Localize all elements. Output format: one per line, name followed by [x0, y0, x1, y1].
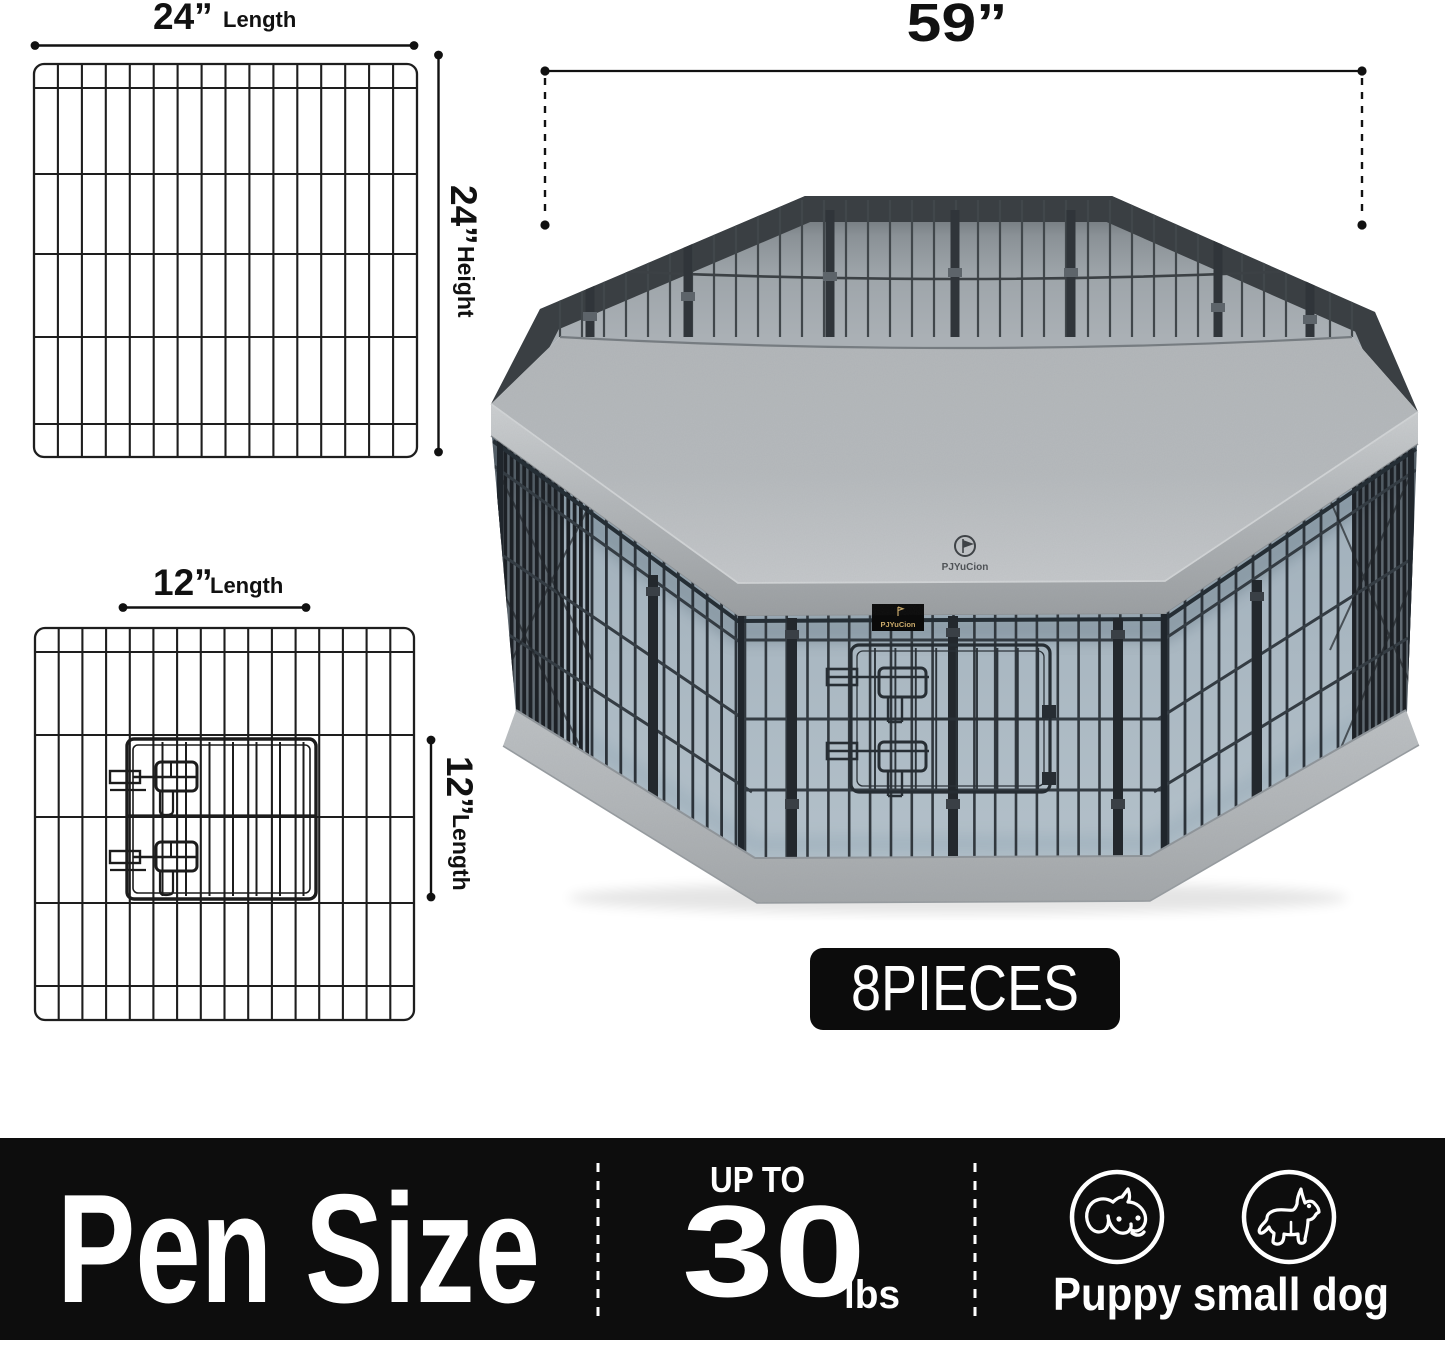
- svg-text:lbs: lbs: [844, 1273, 900, 1317]
- svg-text:Height: Height: [453, 246, 479, 318]
- svg-text:24”: 24”: [443, 185, 484, 245]
- svg-text:12”: 12”: [153, 562, 213, 603]
- svg-text:Length: Length: [210, 573, 283, 598]
- svg-text:Puppy small dog: Puppy small dog: [1053, 1268, 1389, 1320]
- svg-text:PJYuCion: PJYuCion: [880, 620, 915, 629]
- svg-text:Length: Length: [223, 7, 296, 32]
- svg-text:59”: 59”: [907, 0, 1008, 53]
- svg-text:Pen Size: Pen Size: [57, 1162, 540, 1335]
- svg-text:Length: Length: [448, 814, 474, 891]
- svg-text:30: 30: [682, 1178, 866, 1324]
- svg-text:12”: 12”: [439, 756, 480, 816]
- svg-text:24”: 24”: [153, 0, 213, 37]
- svg-text:8PIECES: 8PIECES: [851, 952, 1079, 1024]
